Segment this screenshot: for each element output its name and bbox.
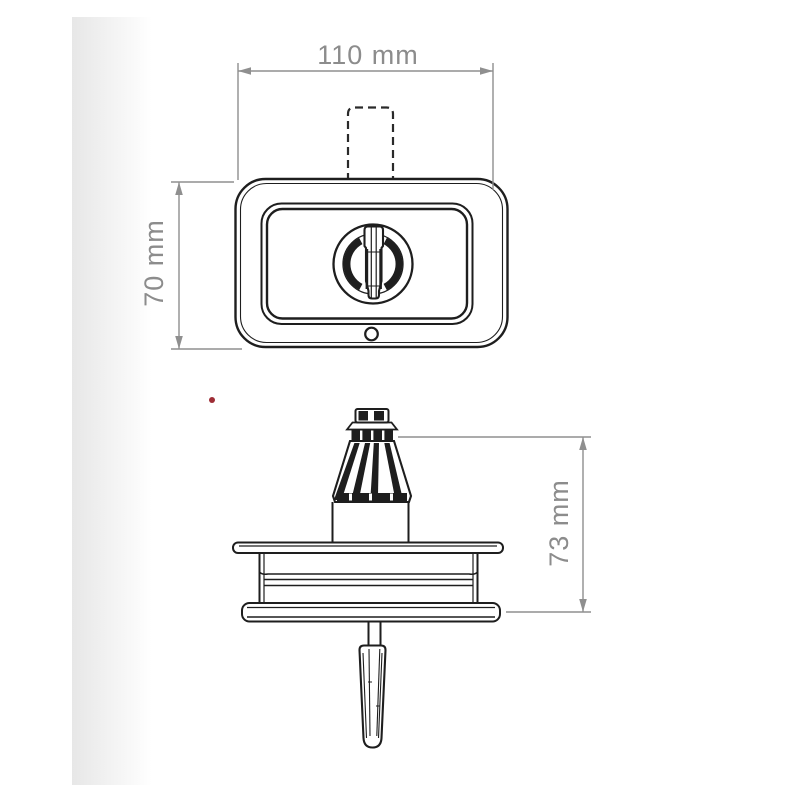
key-head-shade-left: [359, 411, 369, 421]
dim-width-arrow-left: [238, 67, 251, 75]
red-marker-dot: [209, 397, 215, 403]
striker-bolt-hidden-outline: [348, 108, 393, 182]
dim-height-arrow-bottom: [175, 336, 183, 349]
knob-collar-slit-3: [382, 431, 384, 441]
knob-cap: [347, 423, 397, 430]
cone-rib-4: [384, 443, 403, 500]
cone-base-slit-3: [390, 494, 393, 501]
dimension-label-width: 110 mm: [317, 40, 419, 70]
knob-collar-slit-2: [371, 431, 373, 441]
front-view: [236, 108, 508, 348]
side-view: [233, 409, 503, 748]
dim-width-arrow-right: [480, 67, 493, 75]
dimension-label-height: 70 mm: [139, 219, 169, 307]
cone-rib-3: [370, 443, 379, 500]
key-head-shade-right: [374, 411, 384, 421]
dimension-label-depth: 73 mm: [544, 479, 574, 567]
dim-depth-arrow-top: [579, 437, 587, 450]
top-flange: [233, 543, 503, 554]
lock-dimension-drawing: 110 mm 70 mm: [0, 0, 800, 800]
dim-height-arrow-top: [175, 182, 183, 195]
bottom-flange: [242, 603, 500, 622]
cone-base-slit-2: [369, 494, 372, 501]
technical-drawing-page: 110 mm 70 mm: [0, 0, 800, 800]
dim-depth-arrow-bottom: [579, 599, 587, 612]
knob-collar-slit-1: [360, 431, 362, 441]
cone-base-slit-1: [349, 494, 352, 501]
page-edge-shadow: [72, 17, 152, 785]
gasket-curve-line: [260, 572, 478, 574]
